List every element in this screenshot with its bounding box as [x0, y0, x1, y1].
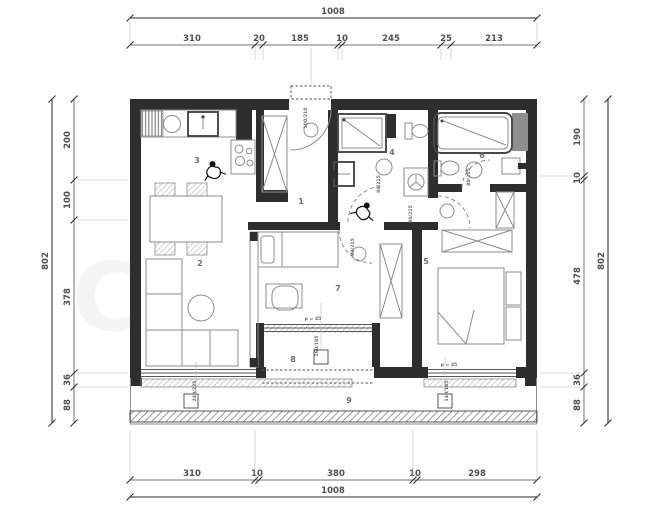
windows-terrace: [130, 303, 537, 424]
dim-right-total: 802: [597, 252, 607, 270]
dim-left-seg-5: 88: [63, 399, 73, 411]
dim-bottom-seg-2: 10: [251, 469, 263, 479]
room-label-bedroom-small: 7: [335, 284, 341, 293]
office-chair: [272, 286, 298, 310]
dim-top-seg-4: 10: [336, 34, 348, 44]
living-window: [141, 370, 352, 388]
dim-top-seg-2: 20: [253, 34, 265, 44]
washbasin: [376, 159, 392, 175]
bathroom-door-label: 80/215: [376, 175, 382, 193]
dim-left-total: 802: [41, 252, 51, 270]
corner-sofa: [146, 259, 238, 366]
dim-top-seg-3: 185: [291, 34, 309, 44]
wardrobe: [496, 192, 514, 228]
dim-left-seg-4: 36: [63, 374, 73, 386]
room-label-terrace: 9: [346, 396, 352, 405]
balcony-window: [264, 324, 372, 333]
dimension-top: 1008 310 20 185 10 245 25 213: [127, 7, 541, 60]
room-label-hall: 1: [298, 197, 304, 206]
double-bed: [438, 268, 521, 344]
pillow: [506, 272, 521, 305]
coffee-table: [188, 295, 214, 321]
bedroom-main-door-label: 80/215: [408, 205, 414, 223]
bedroom-small-furniture: 80/215 p = 45 160/185: [258, 230, 402, 356]
parapet-balcony-label: p = 45: [305, 316, 322, 322]
dim-top-seg-7: 213: [485, 34, 503, 44]
hall-wardrobe: [262, 116, 287, 192]
floor-plan-drawing: 1008 310 20 185 10 245 25 213 310 10 380…: [0, 0, 655, 532]
dimension-bottom: 310 10 380 10 298 1008: [127, 430, 541, 501]
dim-left-seg-1: 200: [63, 131, 73, 149]
dining-table: [150, 183, 222, 255]
pillow: [506, 307, 521, 340]
chair: [155, 242, 175, 255]
dim-left-seg-2: 100: [63, 191, 73, 209]
window-bedroom-label: 140/185: [444, 381, 450, 402]
dim-right-seg-4: 36: [573, 374, 583, 386]
dim-right-seg-1: 190: [573, 128, 583, 146]
dim-bottom-total: 1008: [321, 486, 345, 496]
bedroom-small-door-label: 80/215: [350, 238, 356, 256]
chair: [187, 183, 207, 196]
chair: [187, 242, 207, 255]
room-label-living: 2: [197, 259, 203, 268]
person-icon: [199, 158, 226, 182]
sink-bowl: [164, 116, 181, 133]
room-label-bathroom: 4: [389, 148, 395, 157]
chair: [155, 183, 175, 196]
shaft: [512, 113, 528, 151]
dim-top-seg-6: 25: [440, 34, 452, 44]
entry-door: 100/210: [291, 48, 331, 150]
single-bed: [258, 232, 338, 267]
washing-machine: [404, 168, 428, 196]
toilet-icon: [405, 123, 428, 139]
window-living-label: 240/235: [192, 381, 198, 402]
wardrobe: [380, 244, 402, 318]
watermark: C: [72, 243, 142, 353]
bathtub: [434, 113, 512, 153]
dim-top-total: 1008: [321, 7, 345, 17]
toilet-door-label: 80/215: [466, 168, 472, 186]
shower: [338, 114, 386, 152]
dim-bottom-seg-4: 10: [409, 469, 421, 479]
room-label-loggia: 8: [290, 355, 296, 364]
dim-right-seg-5: 88: [573, 399, 583, 411]
dimension-right: 190 10 478 36 88 802: [539, 96, 612, 427]
dim-bottom-seg-3: 380: [327, 469, 345, 479]
pillow: [261, 236, 274, 263]
entry-door-label: 100/210: [303, 108, 309, 129]
dim-bottom-seg-1: 310: [183, 469, 201, 479]
dim-bottom-seg-5: 298: [468, 469, 486, 479]
person-icon: [349, 199, 377, 222]
washbasin: [502, 158, 527, 174]
dim-right-seg-3: 478: [573, 267, 583, 285]
room-label-bedroom-main: 5: [423, 257, 429, 266]
kitchen-sink: [188, 112, 218, 136]
floor-plan-canvas: 1008 310 20 185 10 245 25 213 310 10 380…: [0, 0, 655, 532]
dim-right-seg-2: 10: [573, 172, 583, 184]
bedroom-window: [424, 370, 516, 388]
dim-top-seg-5: 245: [382, 34, 400, 44]
desk-and-chair: [266, 284, 302, 310]
dishwasher: [141, 111, 163, 136]
entry-door-swing: [291, 110, 331, 150]
window-balcony-label: 160/185: [314, 336, 320, 357]
room-label-toilet: 6: [479, 151, 485, 160]
cooktop: [231, 140, 255, 174]
parapet-bedroom-label: p = 45: [441, 362, 458, 368]
terrace-railing: [130, 411, 537, 422]
wardrobe: [442, 230, 512, 252]
dim-top-seg-1: 310: [183, 34, 201, 44]
room-label-kitchen: 3: [194, 156, 200, 165]
